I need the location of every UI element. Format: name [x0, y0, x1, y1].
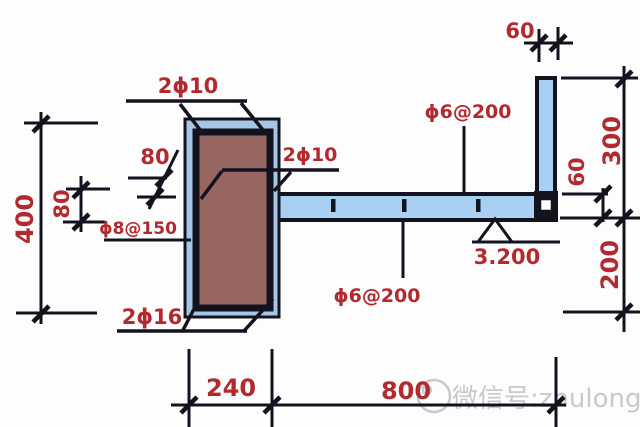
slab-bar-tick [331, 199, 336, 212]
label-phi6-200-bottom: ϕ6@200 [333, 285, 420, 307]
leader-slab-bars-bottom: ϕ6@200 [333, 220, 420, 307]
label-2phi16: 2ϕ16 [122, 305, 183, 329]
label-phi6-200-top: ϕ6@200 [424, 101, 511, 123]
label-2phi10-column-top: 2ϕ10 [158, 74, 219, 98]
column-core [196, 132, 270, 308]
dim-800: 800 [381, 377, 431, 405]
dim-60-right: 60 [565, 157, 589, 186]
leader-column-stirrups: ϕ8@150 [99, 219, 191, 240]
slab-bar-tick [476, 199, 481, 212]
parapet-section [537, 78, 555, 199]
dim-200: 200 [596, 240, 624, 290]
label-2phi10-slab: 2ϕ10 [283, 144, 338, 166]
label-phi8-150: ϕ8@150 [99, 219, 177, 239]
dimension-bar-bend: 80 [128, 145, 178, 209]
elevation-mark: 3.200 [472, 219, 560, 269]
dim-60-top: 60 [505, 19, 534, 43]
dimension-right-chain: 300 60 200 [560, 66, 640, 332]
dim-240: 240 [206, 374, 256, 402]
dim-300: 300 [598, 116, 626, 166]
slab-section [277, 194, 556, 220]
engineering-drawing: 微信号:zhulongjg 400 80 80 [0, 0, 640, 427]
watermark-text: 微信号:zhulongjg [452, 384, 640, 414]
elevation-value: 3.200 [474, 245, 540, 269]
elevation-triangle [478, 219, 512, 242]
dim-80-bend: 80 [140, 145, 169, 169]
watermark: 微信号:zhulongjg [418, 380, 640, 414]
slab-bar-tick [402, 199, 407, 212]
drip-groove-square [540, 199, 552, 211]
section-drawing-canvas: 微信号:zhulongjg 400 80 80 [0, 0, 640, 427]
dim-80-left: 80 [50, 189, 74, 218]
leader-slab-bars-top: ϕ6@200 [424, 101, 511, 193]
dimension-parapet-width: 60 [505, 19, 573, 62]
dim-400: 400 [11, 194, 39, 244]
